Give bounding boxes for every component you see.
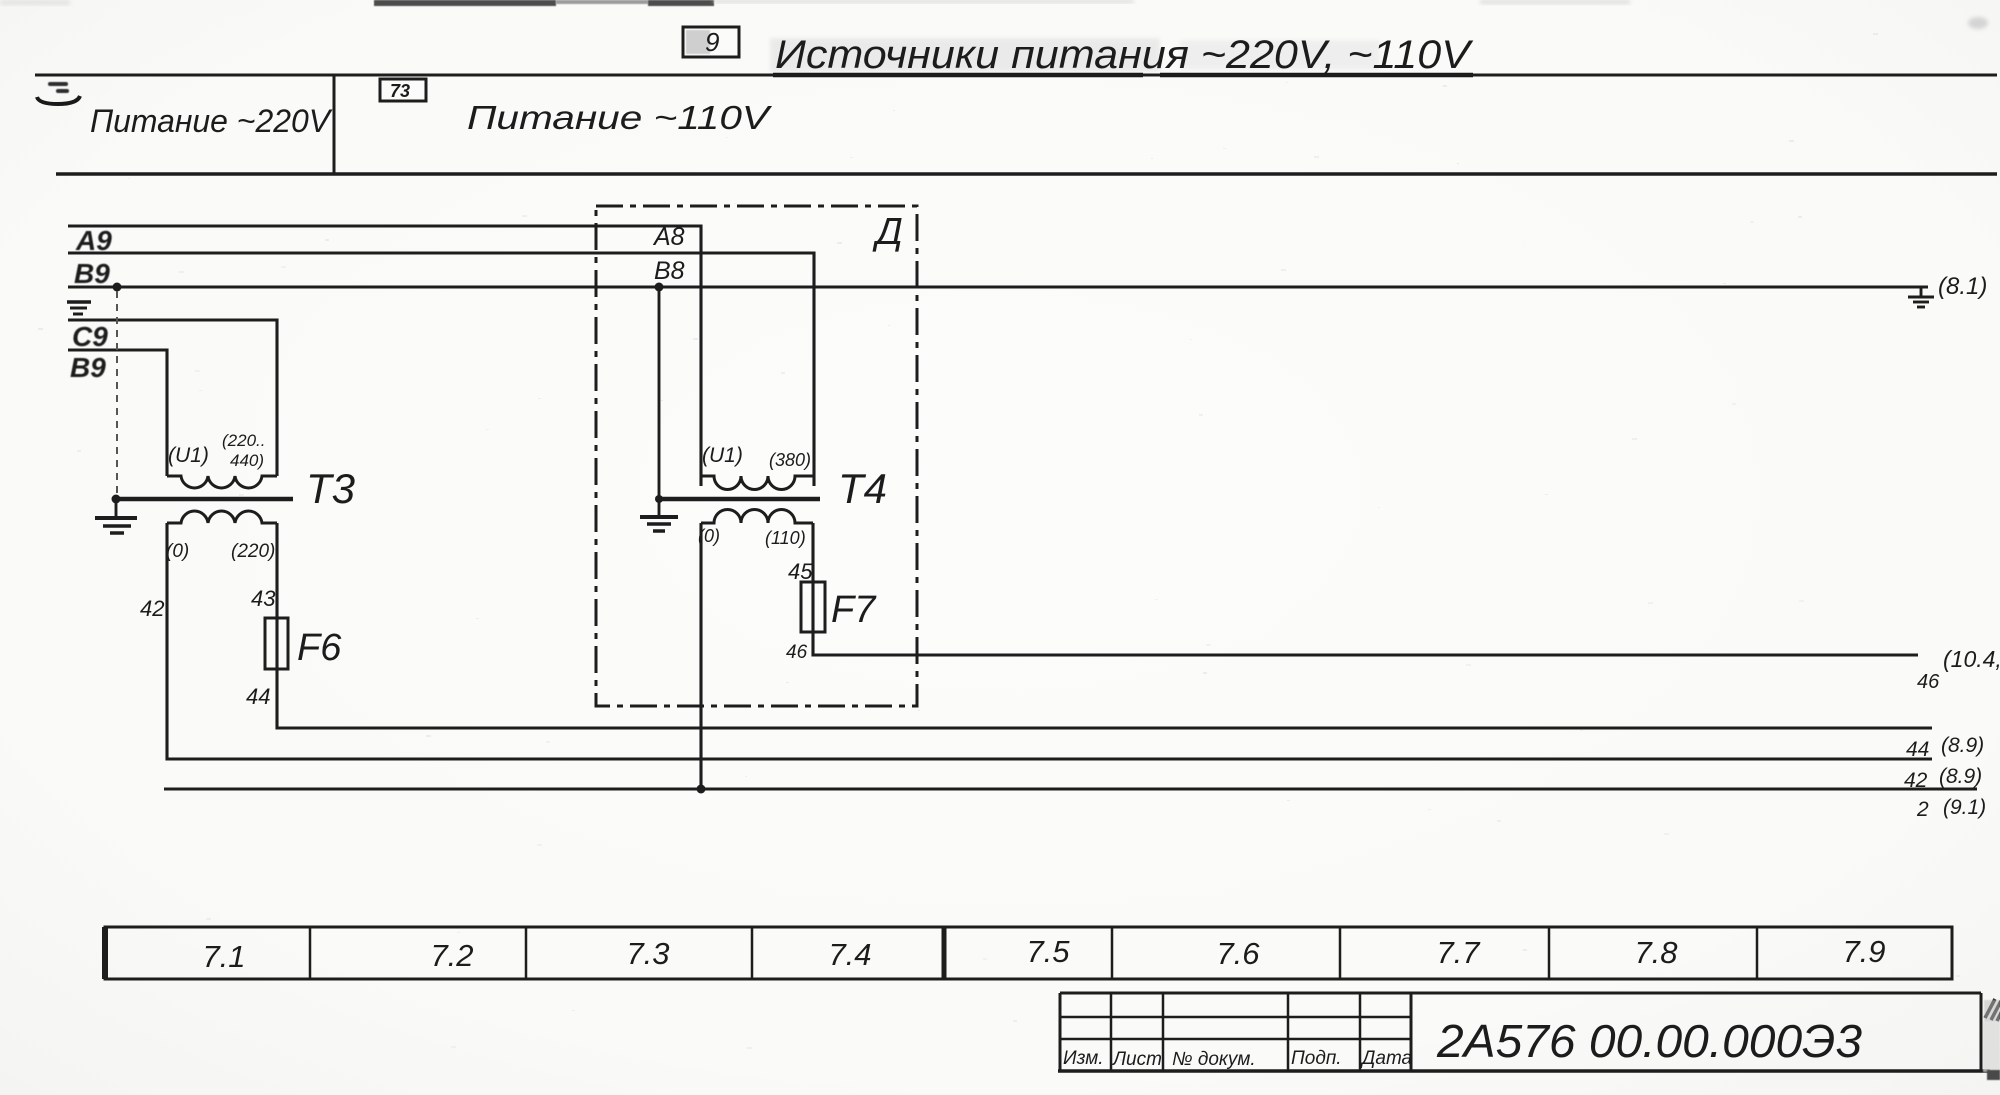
- svg-text:(220..: (220..: [222, 431, 265, 450]
- svg-text:7.7: 7.7: [1436, 935, 1481, 970]
- svg-text:Д: Д: [872, 211, 903, 253]
- svg-text:(8.9): (8.9): [1939, 765, 1982, 788]
- svg-text:9: 9: [705, 27, 719, 57]
- svg-text:С9: С9: [72, 321, 108, 352]
- svg-text:(220): (220): [231, 541, 275, 562]
- svg-text:2А576 00.00.000Э3: 2А576 00.00.000Э3: [1436, 1015, 1862, 1067]
- svg-text:7.1: 7.1: [202, 939, 245, 974]
- svg-text:7.9: 7.9: [1842, 934, 1885, 969]
- svg-text:45: 45: [788, 559, 813, 584]
- svg-text:(0): (0): [166, 541, 189, 562]
- svg-text:43: 43: [251, 586, 276, 611]
- svg-text:F7: F7: [831, 589, 877, 631]
- svg-text:(9.1): (9.1): [1943, 796, 1986, 819]
- svg-text:42: 42: [140, 596, 164, 621]
- svg-text:Т3: Т3: [306, 465, 355, 512]
- svg-text:(10.4,: (10.4,: [1943, 646, 2000, 672]
- svg-text:(U1): (U1): [702, 444, 743, 467]
- svg-text:В9: В9: [70, 352, 106, 383]
- svg-text:46: 46: [786, 642, 808, 663]
- svg-text:Изм.: Изм.: [1063, 1048, 1104, 1069]
- svg-text:В9: В9: [74, 258, 110, 289]
- svg-text:2: 2: [1916, 798, 1929, 821]
- svg-text:(U1): (U1): [168, 444, 209, 467]
- svg-text:44: 44: [246, 684, 270, 709]
- svg-text:(110): (110): [765, 528, 806, 548]
- svg-text:(8.1): (8.1): [1938, 273, 1987, 300]
- svg-text:7.3: 7.3: [626, 936, 669, 971]
- svg-text:7.8: 7.8: [1634, 935, 1678, 970]
- svg-text:44: 44: [1906, 738, 1929, 761]
- svg-text:73: 73: [390, 81, 410, 101]
- svg-text:7.6: 7.6: [1216, 936, 1260, 971]
- svg-text:Источники питания ~220V, ~110: Источники питания ~220V, ~110V: [775, 33, 1474, 77]
- svg-text:А9: А9: [75, 225, 112, 256]
- svg-text:Дата: Дата: [1360, 1048, 1412, 1069]
- svg-text:(380): (380): [769, 450, 811, 470]
- svg-text:(8.9): (8.9): [1941, 734, 1984, 757]
- svg-text:Питание ~110V: Питание ~110V: [467, 99, 773, 136]
- svg-text:Лист: Лист: [1111, 1049, 1162, 1070]
- svg-text:А8: А8: [652, 223, 685, 251]
- svg-text:В8: В8: [654, 257, 685, 285]
- svg-text:Питание ~220V: Питание ~220V: [90, 103, 333, 139]
- svg-text:42: 42: [1904, 769, 1928, 792]
- svg-text:7.4: 7.4: [828, 937, 871, 972]
- svg-text:46: 46: [1917, 671, 1940, 693]
- svg-text:7.5: 7.5: [1026, 934, 1070, 969]
- svg-text:№ докум.: № докум.: [1172, 1049, 1256, 1070]
- svg-text:440): 440): [230, 451, 264, 470]
- svg-text:Т4: Т4: [838, 465, 887, 512]
- svg-text:F6: F6: [297, 627, 342, 669]
- svg-text:Подп.: Подп.: [1291, 1048, 1342, 1069]
- svg-text:7.2: 7.2: [430, 938, 473, 973]
